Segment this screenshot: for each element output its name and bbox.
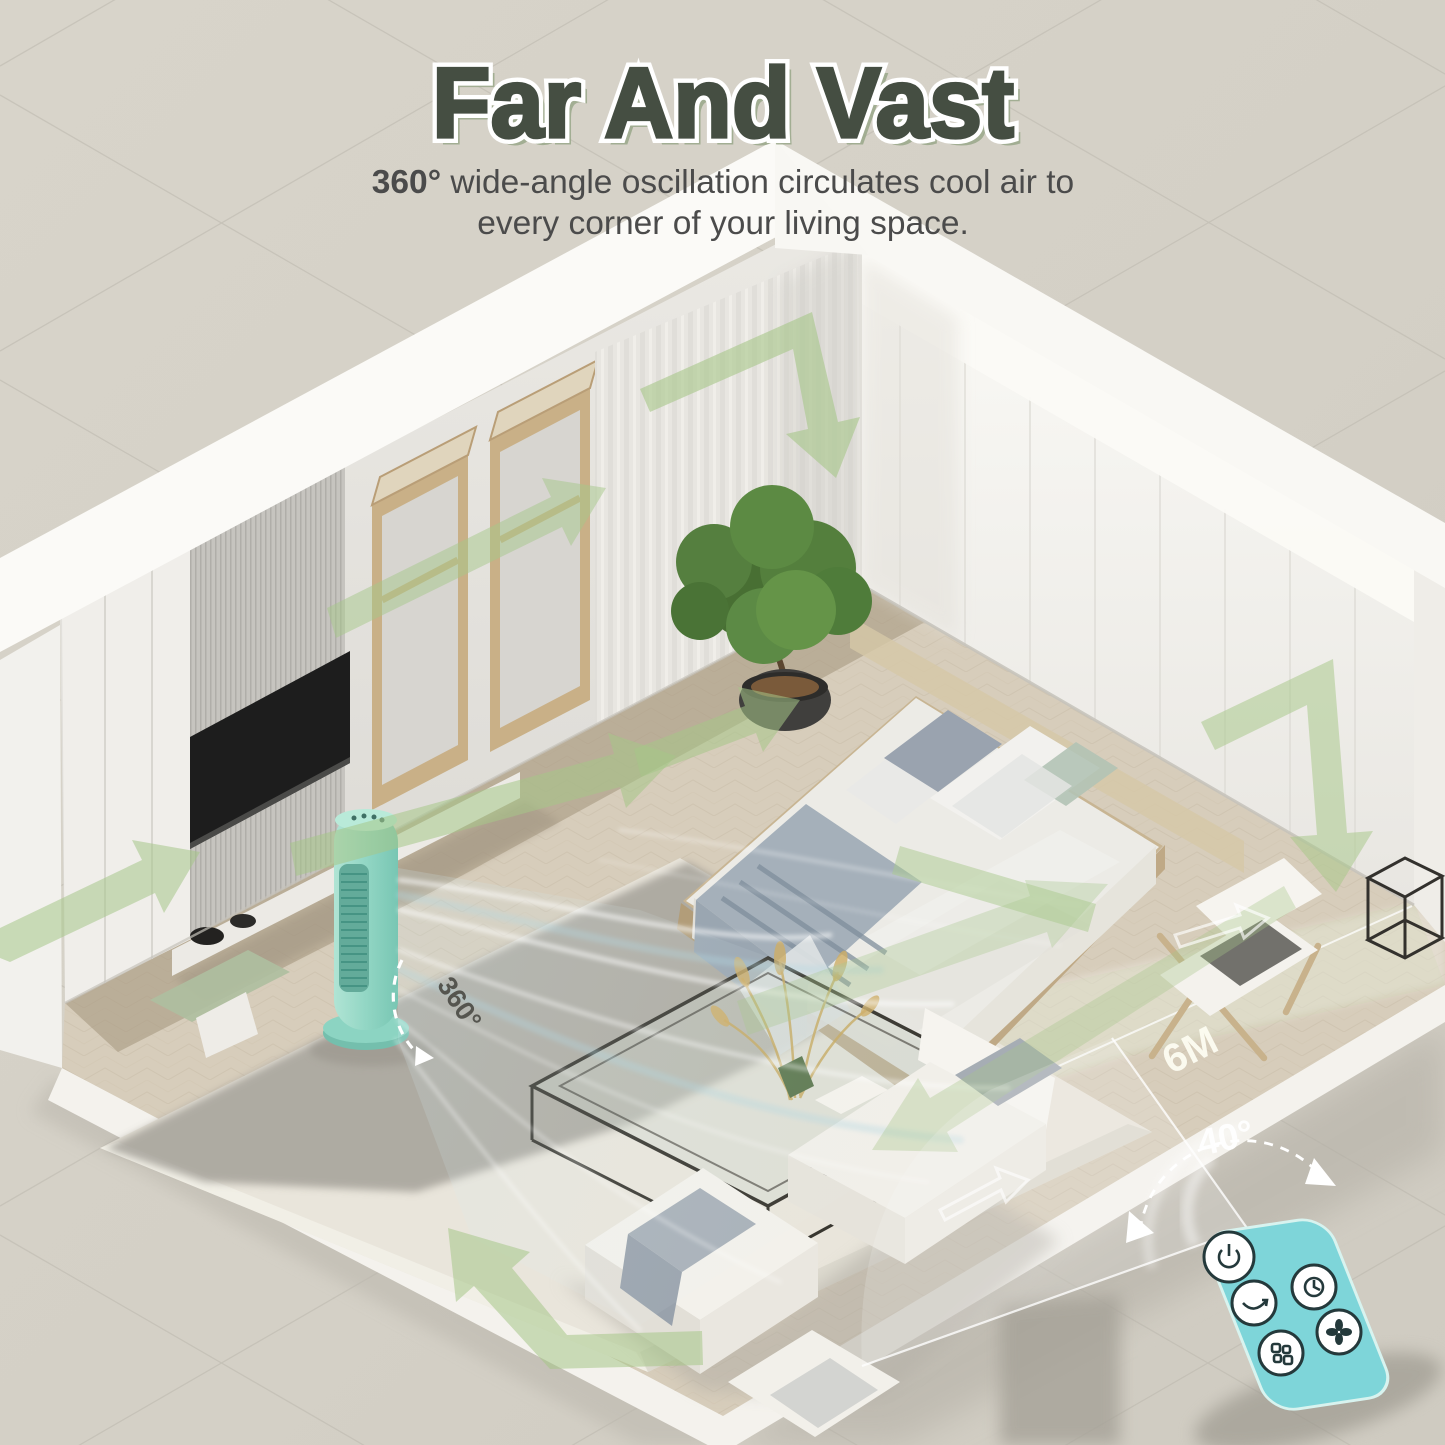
svg-text:Far And Vast: Far And Vast bbox=[432, 47, 1014, 158]
svg-text:360° wide-angle oscillation ci: 360° wide-angle oscillation circulates c… bbox=[372, 164, 1074, 201]
svg-text:every corner of your living sp: every corner of your living space. bbox=[477, 205, 969, 242]
